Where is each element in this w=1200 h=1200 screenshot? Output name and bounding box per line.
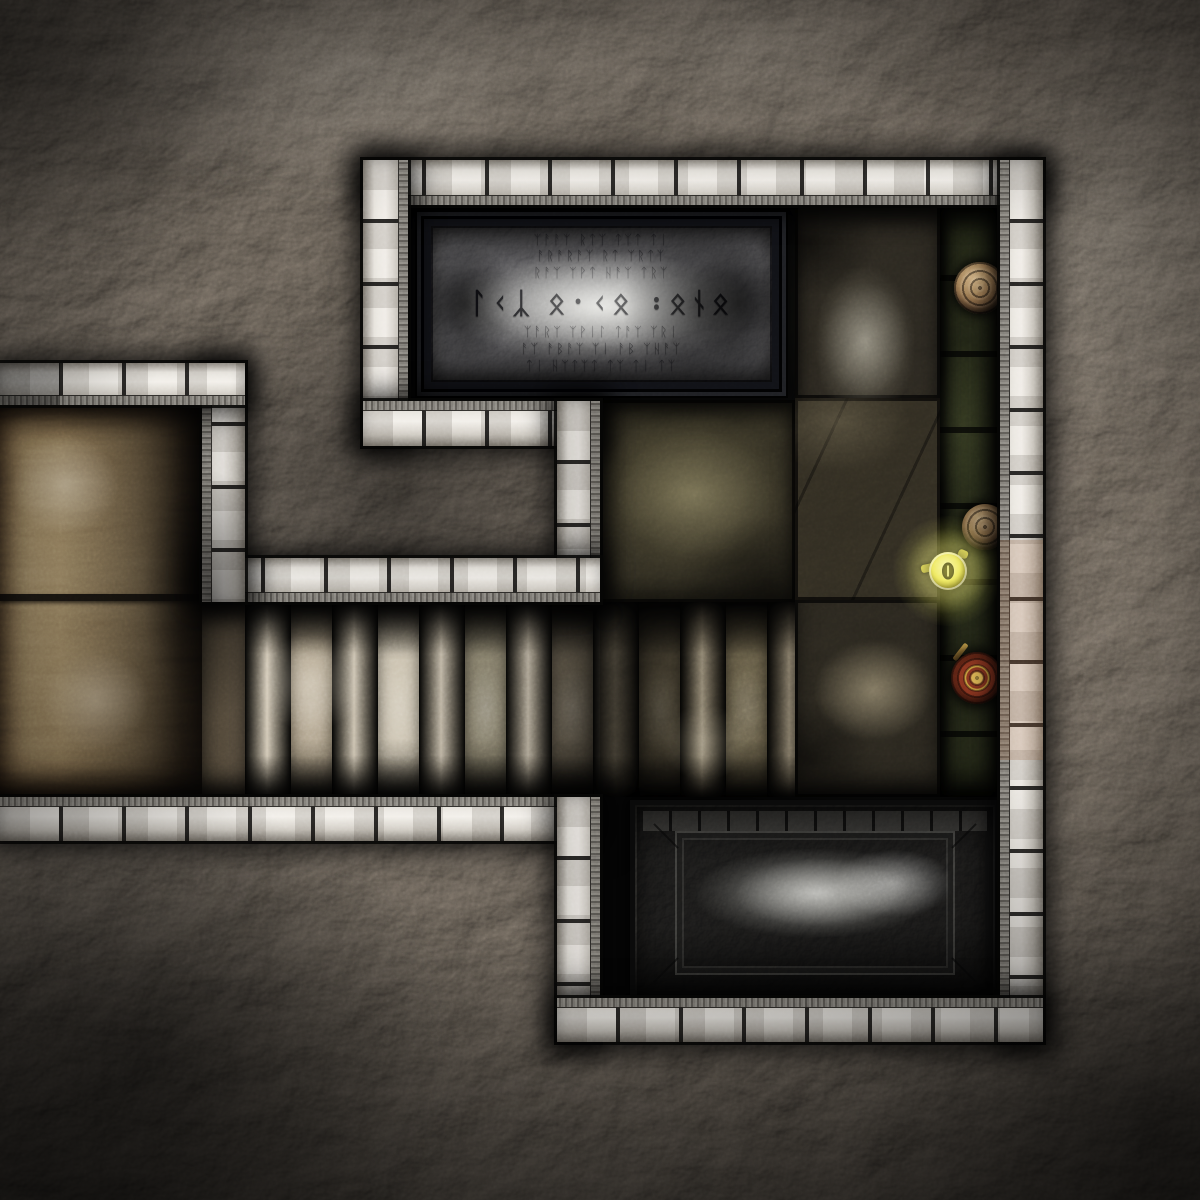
dungeon-map: ᛉᚨᚨᛉ ᚱᛏᛉ ᛏᛉᛏ ᛏᛁᚨᚱᚨᚱᚨᛉ ᚱᛏ ᛉᚱᛏᛉᚱᚨᛉ ᛉᚹᛏ ᚺᚨᛉ… — [0, 0, 1200, 1200]
film-grain — [0, 0, 1200, 1200]
